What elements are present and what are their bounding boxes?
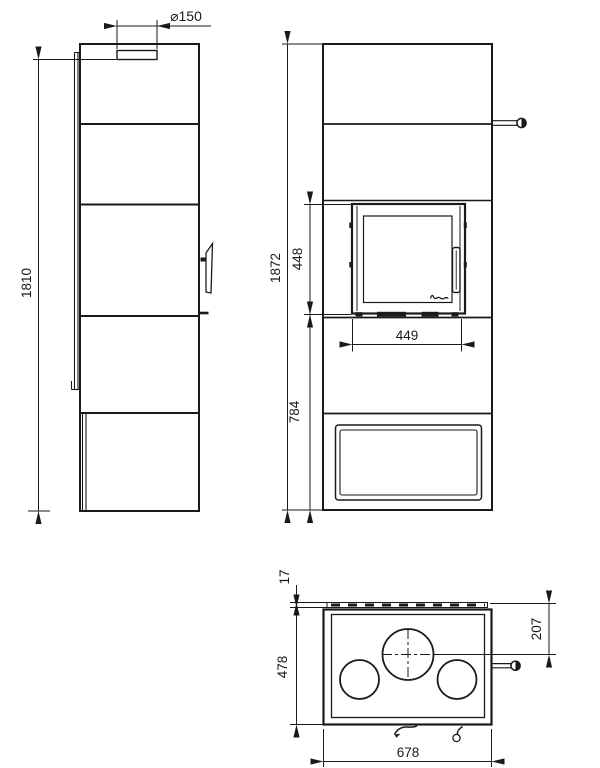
front-view-dimensions bbox=[282, 44, 462, 510]
door-latch-top bbox=[395, 726, 463, 742]
dim-label-784: 784 bbox=[287, 400, 302, 423]
damper-knob bbox=[492, 118, 526, 127]
left-opening-circle bbox=[340, 660, 379, 699]
flue-collar-side bbox=[117, 51, 157, 60]
flue-opening-circle bbox=[382, 629, 434, 680]
side-plinth-lines bbox=[83, 414, 87, 511]
stove-technical-drawing: 1810 ⌀150 bbox=[0, 0, 600, 768]
dim-label-1872: 1872 bbox=[268, 253, 283, 283]
side-panel-strip bbox=[72, 53, 81, 390]
base-panel bbox=[336, 425, 482, 500]
dim-label-478: 478 bbox=[275, 656, 290, 679]
brand-logo-icon bbox=[431, 295, 449, 298]
dim-label-flue-diameter: ⌀150 bbox=[170, 8, 202, 24]
dim-label-207: 207 bbox=[529, 618, 544, 641]
damper-knob-top bbox=[492, 661, 521, 670]
door-glass bbox=[364, 216, 453, 303]
side-view bbox=[72, 44, 213, 511]
top-view bbox=[324, 603, 521, 742]
back-strip bbox=[327, 603, 488, 608]
side-door-handle bbox=[201, 244, 213, 294]
side-view-dimensions bbox=[28, 20, 211, 511]
firebox-door bbox=[349, 204, 467, 317]
side-body-outline bbox=[80, 44, 199, 511]
dim-label-678: 678 bbox=[397, 745, 420, 760]
drawing-sheet: 1810 ⌀150 bbox=[0, 0, 600, 768]
door-frame bbox=[352, 204, 465, 314]
hinge-marks bbox=[349, 223, 467, 268]
front-body-outline bbox=[323, 44, 492, 510]
dim-label-448: 448 bbox=[290, 248, 305, 271]
dim-label-17: 17 bbox=[277, 569, 292, 584]
dim-label-1810: 1810 bbox=[19, 268, 34, 298]
front-view bbox=[323, 44, 526, 510]
right-opening-circle bbox=[438, 660, 477, 699]
dim-label-449: 449 bbox=[396, 328, 419, 343]
